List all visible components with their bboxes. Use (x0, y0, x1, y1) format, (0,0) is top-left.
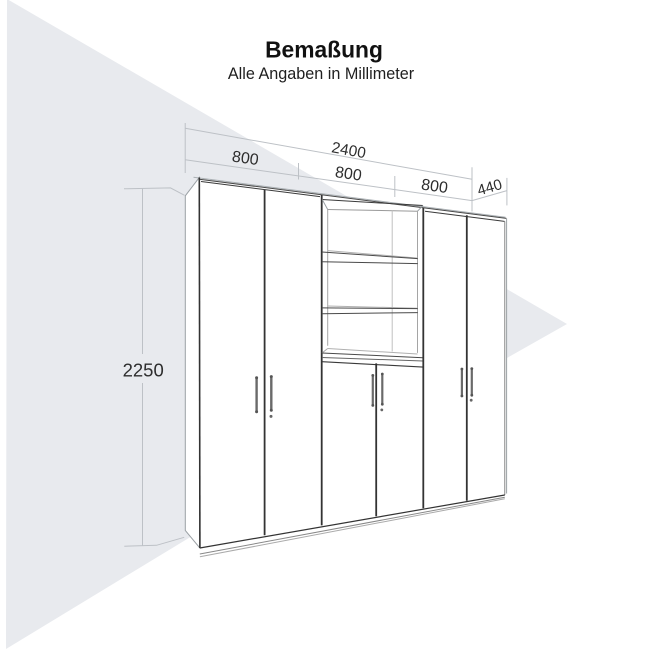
svg-text:2250: 2250 (123, 360, 164, 381)
svg-text:2400: 2400 (330, 139, 367, 162)
svg-text:440: 440 (475, 176, 504, 199)
svg-text:Bemaßung: Bemaßung (265, 37, 383, 63)
svg-text:Alle Angaben in Millimeter: Alle Angaben in Millimeter (228, 65, 415, 83)
